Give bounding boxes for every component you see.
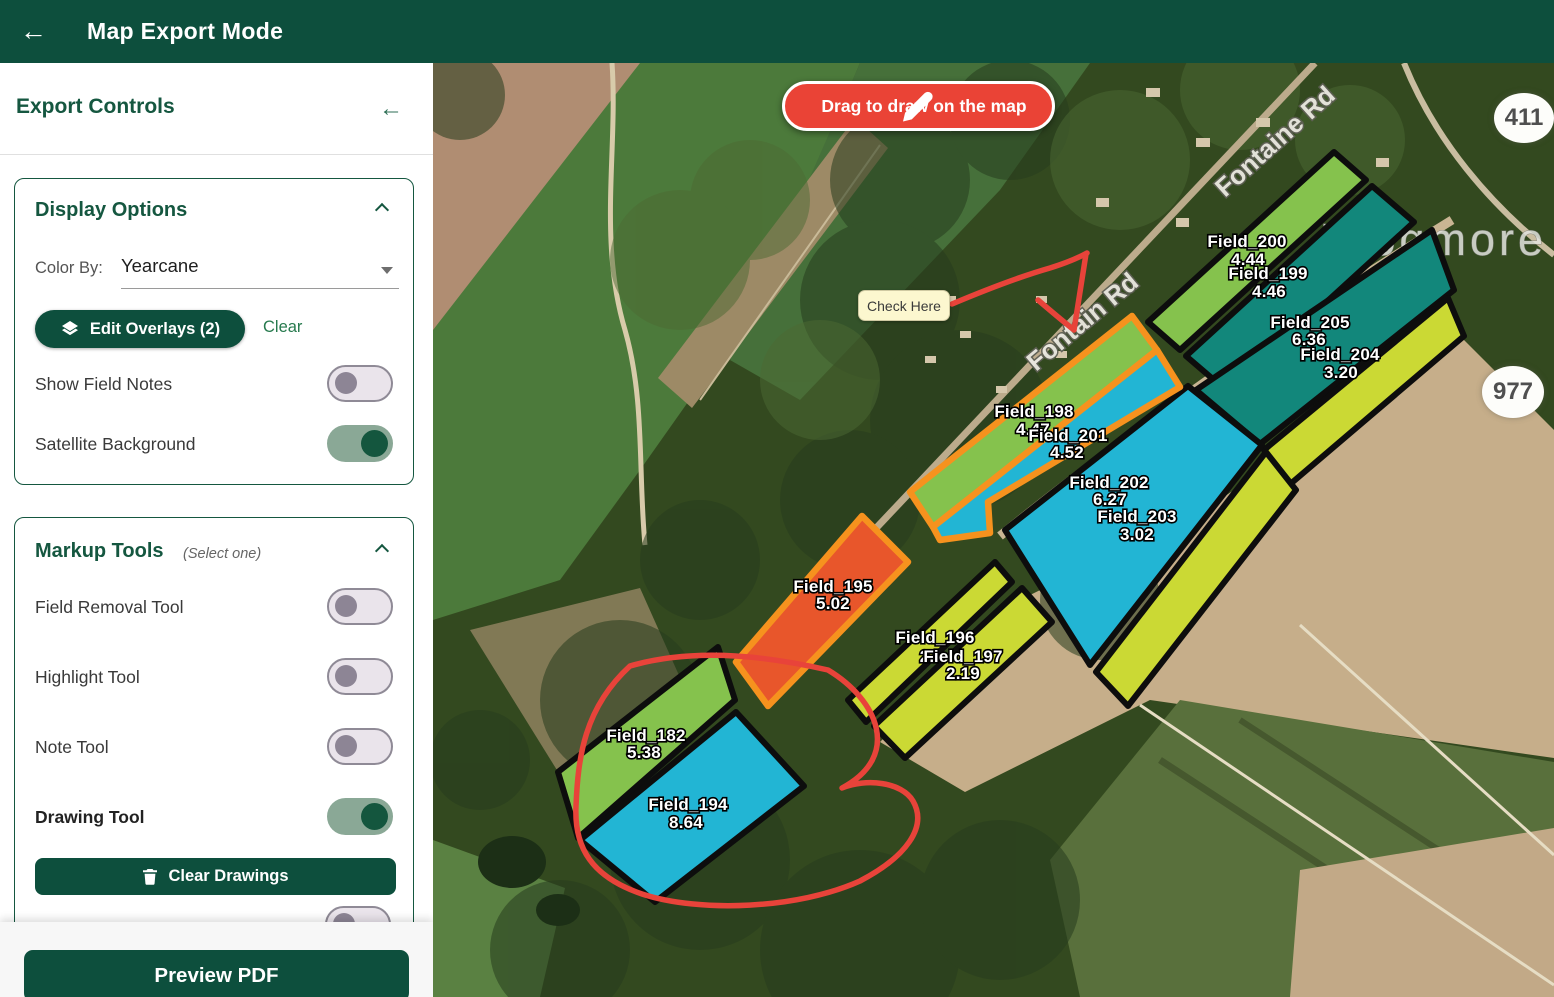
- color-by-value: Yearcane: [121, 255, 199, 276]
- field-label-198: Field_198: [994, 402, 1073, 421]
- toggle-knob: [335, 665, 357, 687]
- satellite-background-label: Satellite Background: [35, 434, 196, 455]
- markup-tools-card: Markup Tools (Select one) Field Removal …: [14, 517, 414, 937]
- edit-overlays-button[interactable]: Edit Overlays (2): [35, 310, 245, 348]
- export-controls-panel: Export Controls ← Display Options Color …: [0, 63, 433, 997]
- markup-tools-title: Markup Tools: [35, 540, 164, 563]
- map-note-text: Check Here: [867, 298, 941, 314]
- drag-to-draw-banner[interactable]: Drag to draw on the map: [782, 81, 1055, 131]
- color-by-select[interactable]: Yearcane: [121, 255, 399, 289]
- field-label-204: Field_204: [1300, 345, 1380, 364]
- map-export-app: ← Map Export Mode Export Controls ← Disp…: [0, 0, 1554, 997]
- dropdown-caret-icon: [381, 267, 393, 274]
- field-removal-tool-label: Field Removal Tool: [35, 597, 184, 618]
- show-field-notes-label: Show Field Notes: [35, 374, 172, 395]
- toggle-knob: [335, 595, 357, 617]
- toggle-knob: [335, 735, 357, 757]
- clear-overlays-link[interactable]: Clear: [263, 318, 302, 337]
- layers-icon: [60, 319, 80, 339]
- field-value-182: 5.38: [627, 743, 661, 762]
- field-removal-tool-toggle[interactable]: [327, 588, 393, 625]
- panel-header: Export Controls ←: [0, 63, 433, 154]
- route-shield-977: 977: [1482, 366, 1544, 418]
- toggle-knob: [335, 372, 357, 394]
- map-canvas[interactable]: Frogmore Fontain Rd Fontaine Rd: [433, 63, 1554, 997]
- panel-footer: Preview PDF: [0, 922, 433, 997]
- show-field-notes-toggle[interactable]: [327, 365, 393, 402]
- note-tool-label: Note Tool: [35, 737, 109, 758]
- field-label-199: Field_199: [1228, 264, 1307, 283]
- back-arrow-icon[interactable]: ←: [20, 16, 54, 47]
- toggle-knob: [361, 430, 388, 457]
- divider: [0, 154, 433, 155]
- route-shield-number: 411: [1505, 104, 1544, 132]
- map-note[interactable]: Check Here: [858, 290, 950, 321]
- display-options-title: Display Options: [35, 199, 187, 222]
- edit-overlays-label: Edit Overlays (2): [90, 320, 220, 339]
- field-value-194: 8.64: [669, 813, 703, 832]
- collapse-panel-icon[interactable]: ←: [379, 95, 403, 123]
- display-options-card: Display Options Color By: Yearcane Edit …: [14, 178, 414, 485]
- highlight-tool-label: Highlight Tool: [35, 667, 140, 688]
- field-value-199: 4.46: [1252, 282, 1286, 301]
- chevron-up-icon[interactable]: [375, 203, 389, 217]
- route-shield-number: 977: [1493, 378, 1533, 406]
- preview-pdf-button[interactable]: Preview PDF: [24, 950, 409, 997]
- toggle-knob: [361, 803, 388, 830]
- route-shield-411: 411: [1494, 93, 1554, 143]
- field-value-195: 5.02: [816, 594, 850, 613]
- drawing-tool-label: Drawing Tool: [35, 807, 145, 828]
- highlight-tool-toggle[interactable]: [327, 658, 393, 695]
- field-value-201: 4.52: [1050, 443, 1084, 462]
- color-by-label: Color By:: [35, 259, 103, 278]
- field-value-204: 3.20: [1324, 363, 1358, 382]
- field-label-196: Field_196: [895, 628, 974, 647]
- app-bar-title: Map Export Mode: [87, 18, 283, 45]
- app-bar: ← Map Export Mode: [0, 0, 1554, 63]
- satellite-background-toggle[interactable]: [327, 425, 393, 462]
- clear-drawings-label: Clear Drawings: [168, 867, 288, 886]
- field-label-200: Field_200: [1207, 232, 1286, 251]
- panel-title: Export Controls: [16, 95, 175, 119]
- note-tool-toggle[interactable]: [327, 728, 393, 765]
- field-label-194: Field_194: [648, 795, 728, 814]
- chevron-up-icon[interactable]: [375, 544, 389, 558]
- clear-drawings-button[interactable]: Clear Drawings: [35, 858, 396, 895]
- field-value-197: 2.19: [946, 664, 980, 683]
- trash-icon: [142, 868, 158, 885]
- field-value-203: 3.02: [1120, 525, 1154, 544]
- drawing-tool-toggle[interactable]: [327, 798, 393, 835]
- field-label-203: Field_203: [1097, 507, 1176, 526]
- markup-tools-subtitle: (Select one): [183, 546, 261, 562]
